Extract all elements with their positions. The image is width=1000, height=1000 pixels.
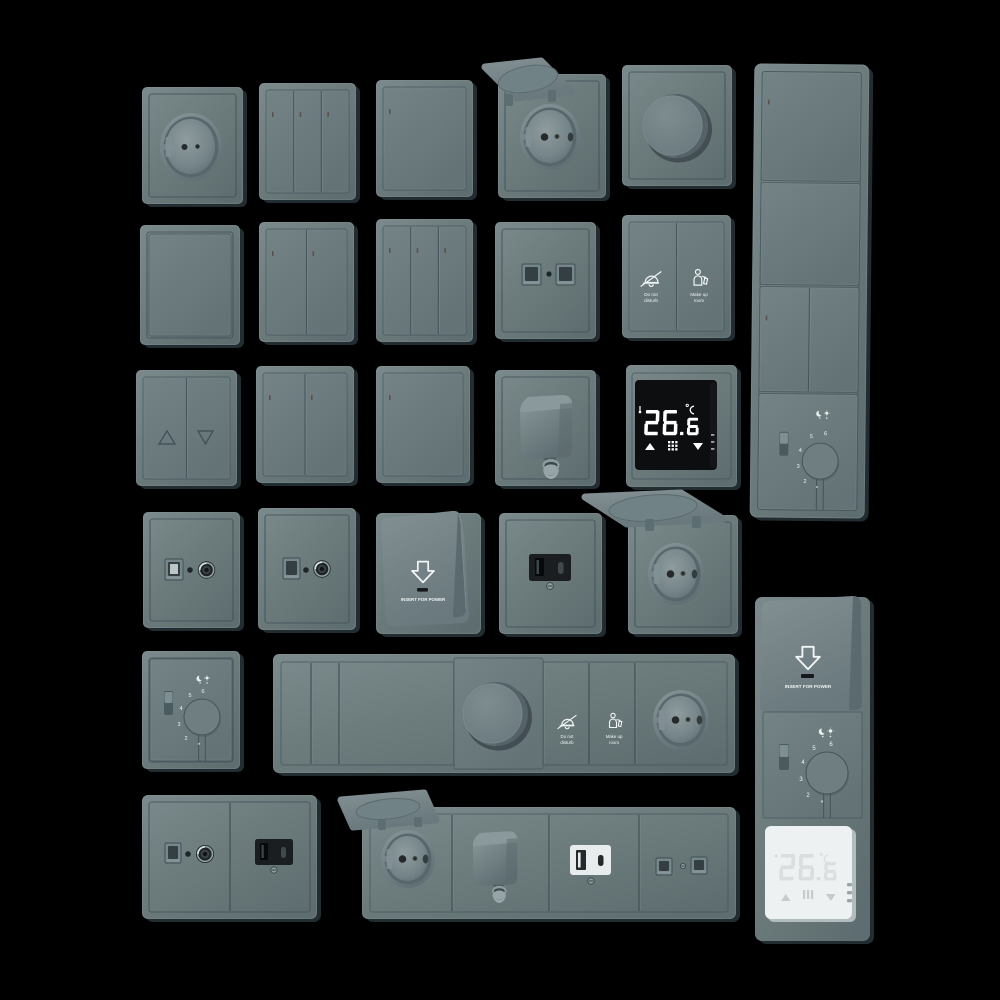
svg-text:INSERT FOR POWER: INSERT FOR POWER xyxy=(785,684,832,689)
svg-text:room: room xyxy=(609,740,619,745)
svg-text:Make up: Make up xyxy=(690,292,708,297)
svg-text:3: 3 xyxy=(177,722,180,728)
svg-text:3: 3 xyxy=(797,464,800,470)
svg-text:2: 2 xyxy=(803,479,806,485)
svg-text:*: * xyxy=(821,800,824,807)
svg-text:2: 2 xyxy=(184,736,187,742)
svg-text:disturb: disturb xyxy=(644,298,658,303)
svg-text:6: 6 xyxy=(824,431,827,437)
svg-text:4: 4 xyxy=(799,448,802,454)
svg-text:room: room xyxy=(694,298,705,303)
svg-text:5: 5 xyxy=(810,434,813,440)
svg-text:Make up: Make up xyxy=(606,734,623,739)
svg-text:6: 6 xyxy=(201,689,204,695)
svg-text:disturb: disturb xyxy=(560,740,574,745)
svg-text:5: 5 xyxy=(188,693,191,699)
svg-text:4: 4 xyxy=(179,706,182,712)
svg-text:INSERT FOR POWER: INSERT FOR POWER xyxy=(401,597,446,602)
svg-text:Do not: Do not xyxy=(561,734,575,739)
svg-text:Do not: Do not xyxy=(644,292,658,297)
